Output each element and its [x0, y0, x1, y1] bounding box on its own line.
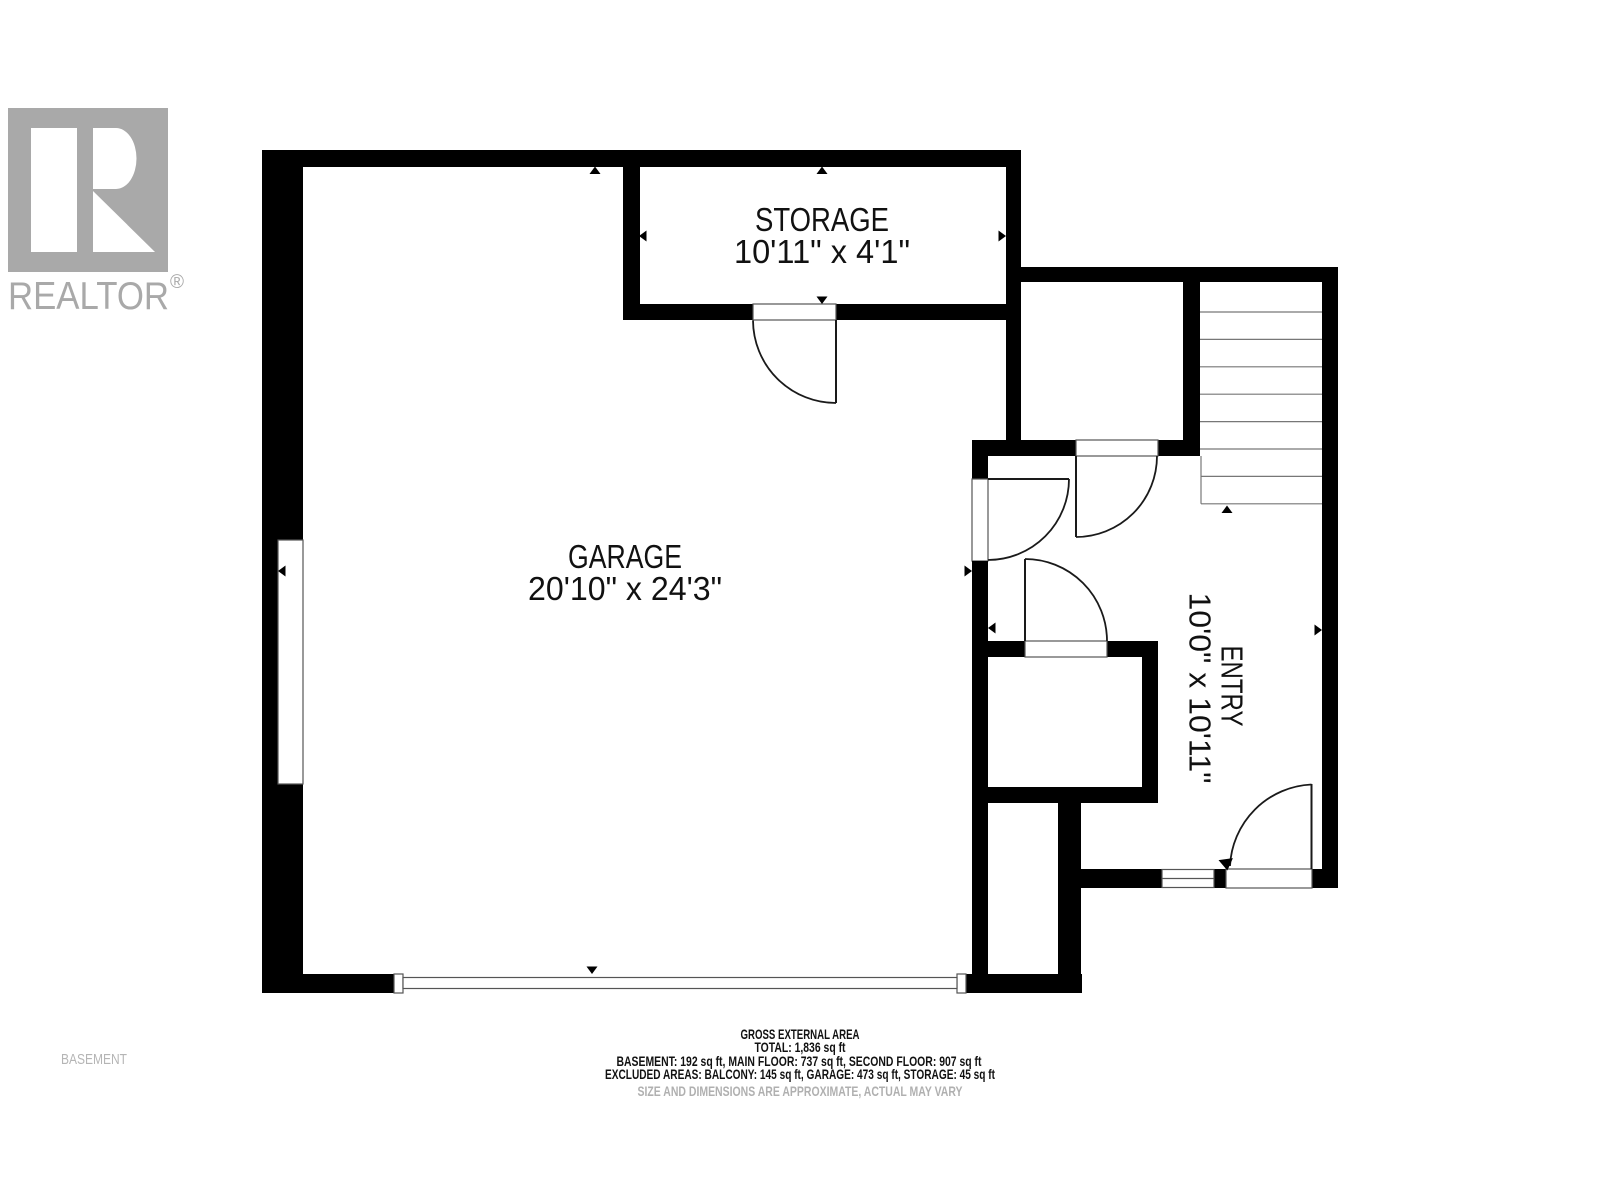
svg-text:20'10" x 24'3": 20'10" x 24'3" — [528, 570, 722, 607]
svg-text:REALTOR: REALTOR — [8, 275, 169, 318]
svg-text:EXCLUDED AREAS: BALCONY: 145 s: EXCLUDED AREAS: BALCONY: 145 sq ft, GARA… — [605, 1066, 995, 1082]
svg-text:SIZE AND DIMENSIONS ARE APPROX: SIZE AND DIMENSIONS ARE APPROXIMATE, ACT… — [638, 1083, 963, 1099]
svg-text:BASEMENT: BASEMENT — [61, 1052, 127, 1068]
svg-text:ENTRY: ENTRY — [1215, 646, 1250, 727]
svg-text:10'11" x 4'1": 10'11" x 4'1" — [734, 233, 910, 270]
svg-text:10'0" x 10'11": 10'0" x 10'11" — [1183, 593, 1218, 784]
svg-text:®: ® — [170, 272, 184, 293]
